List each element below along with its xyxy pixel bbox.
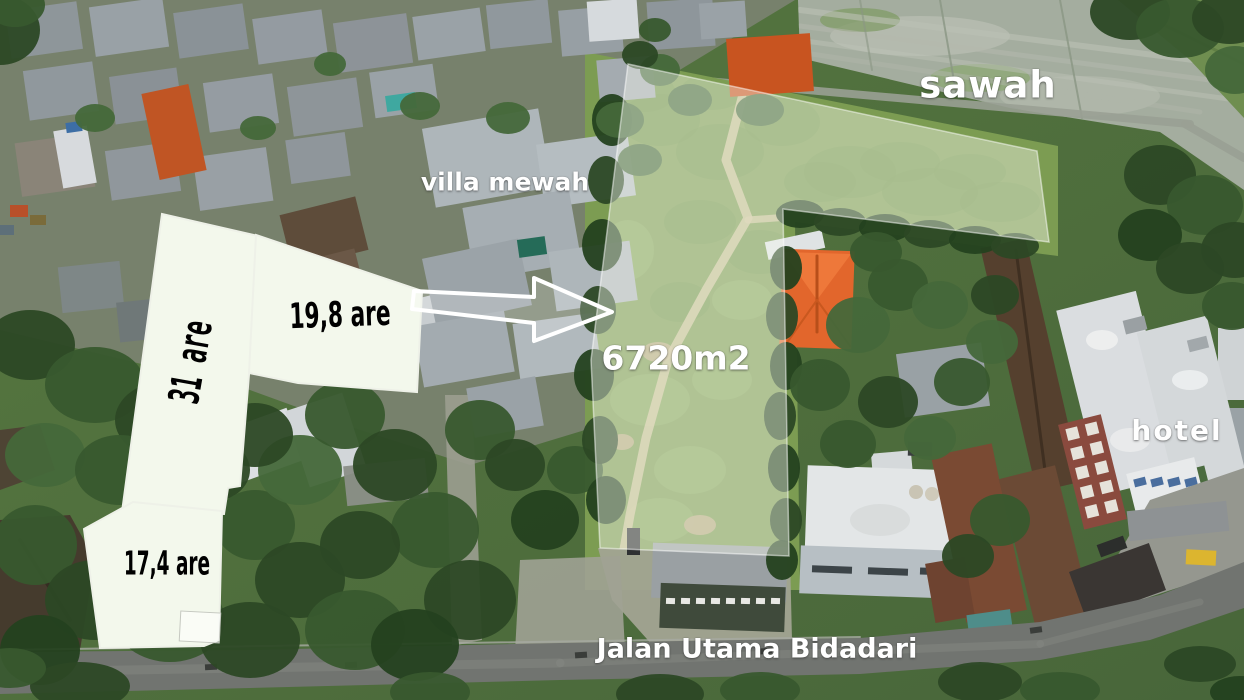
aerial-photo: sawah villa mewah 6720m2 hotel Jalan Uta… bbox=[0, 0, 1244, 700]
scene-graphics bbox=[0, 0, 1244, 700]
